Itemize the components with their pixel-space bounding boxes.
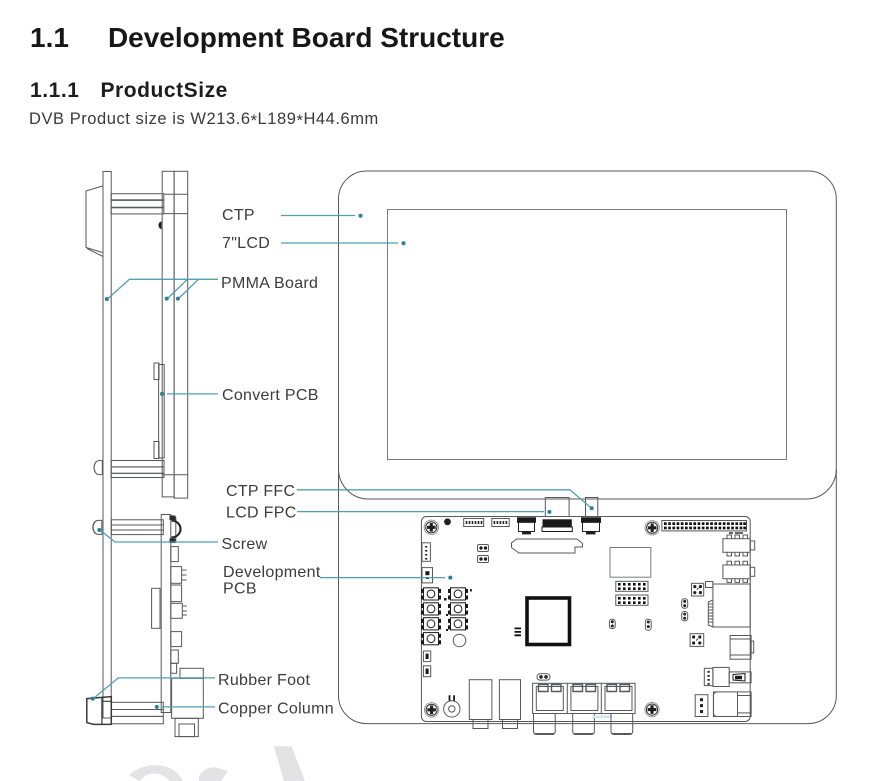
svg-text:Convert PCB: Convert PCB xyxy=(222,387,319,404)
svg-text:PMMA Board: PMMA Board xyxy=(221,275,318,292)
svg-text:CTP FFC: CTP FFC xyxy=(226,483,295,500)
svg-text:Development: Development xyxy=(223,564,321,581)
svg-text:7"LCD: 7"LCD xyxy=(222,235,270,252)
svg-text:Rubber Foot: Rubber Foot xyxy=(218,672,310,689)
svg-text:Screw: Screw xyxy=(222,536,268,553)
svg-text:Copper Column: Copper Column xyxy=(218,701,334,718)
svg-text:CTP: CTP xyxy=(222,207,255,224)
svg-text:LCD FPC: LCD FPC xyxy=(226,505,297,522)
svg-text:PCB: PCB xyxy=(223,581,257,598)
